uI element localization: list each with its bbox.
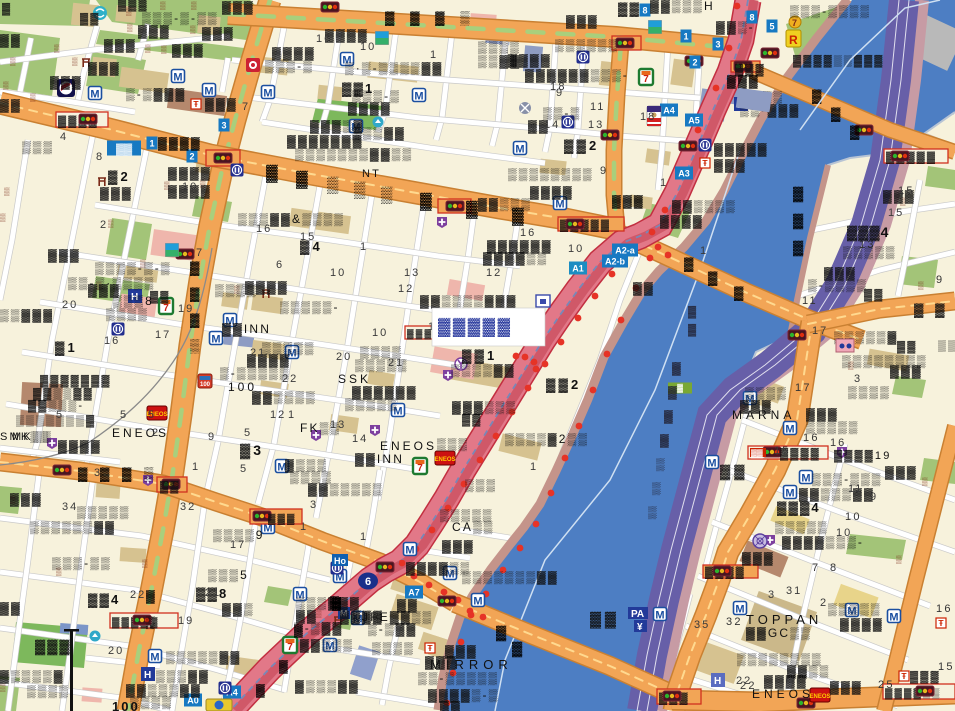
svg-text:▓: ▓ <box>688 323 697 337</box>
svg-text:2: 2 <box>152 427 160 439</box>
svg-text:▓▓: ▓▓ <box>633 281 655 296</box>
svg-text:3: 3 <box>768 589 776 601</box>
svg-text:M: M <box>889 612 898 624</box>
svg-text:▒▒▒▒▒▒: ▒▒▒▒▒▒ <box>555 38 619 52</box>
svg-text:▓: ▓ <box>420 192 432 211</box>
svg-text:17: 17 <box>230 539 246 551</box>
svg-text:7: 7 <box>196 247 204 259</box>
svg-text:▓▓▓: ▓▓▓ <box>727 74 760 89</box>
svg-text:31: 31 <box>786 585 802 597</box>
svg-text:▓▓▓: ▓▓▓ <box>885 465 918 480</box>
svg-text:1: 1 <box>360 241 368 253</box>
svg-text:▓▓▓: ▓▓▓ <box>205 97 238 112</box>
svg-text:▓▓▒▒▓▓: ▓▓▒▒▓▓ <box>33 387 94 401</box>
svg-text:▓▓: ▓▓ <box>590 611 620 629</box>
svg-text:▓▓▓: ▓▓▓ <box>104 38 137 53</box>
svg-text:▓▓▓: ▓▓▓ <box>172 43 205 58</box>
svg-text:▓▓: ▓▓ <box>864 288 884 302</box>
svg-text:M: M <box>555 199 564 211</box>
svg-text:▓▓▓▓: ▓▓▓▓ <box>530 185 574 200</box>
svg-text:16: 16 <box>316 33 332 45</box>
svg-text:▓: ▓ <box>512 640 524 658</box>
svg-text:21: 21 <box>250 347 266 359</box>
svg-text:7: 7 <box>287 642 293 653</box>
svg-text:▓▒▒▒▓▓: ▓▒▒▒▓▓ <box>295 679 360 694</box>
svg-text:▒▒▒▓▓: ▒▒▒▓▓ <box>156 669 210 684</box>
svg-text:▓▓1: ▓▓1 <box>462 348 497 364</box>
svg-text:▓▓▒▒▒▒▒: ▓▓▒▒▒▒▒ <box>308 482 383 497</box>
svg-text:1: 1 <box>530 461 538 473</box>
svg-text:▓▓▓▒▓: ▓▓▓▒▓ <box>310 119 365 134</box>
svg-text:▓▓▒▒▒: ▓▓▒▒▒ <box>478 197 532 212</box>
svg-text:M: M <box>515 144 524 156</box>
svg-text:2: 2 <box>820 597 828 609</box>
svg-text:▓2: ▓2 <box>108 169 131 185</box>
svg-text:▓: ▓ <box>266 164 278 183</box>
svg-text:34: 34 <box>62 501 78 513</box>
svg-text:2: 2 <box>100 219 108 231</box>
svg-text:1: 1 <box>430 49 438 61</box>
svg-text:▓▓: ▓▓ <box>160 480 180 494</box>
svg-text:▒: ▒ <box>648 505 657 519</box>
svg-text:M: M <box>150 652 159 664</box>
svg-text:▒▒▒▒▒▒▒▓▓▒▒: ▒▒▒▒▒▒▒▓▓▒▒ <box>295 147 413 162</box>
svg-text:▓▓▒▒▒▒▓▓▓: ▓▓▒▒▒▒▓▓▓ <box>420 294 518 309</box>
svg-text:15: 15 <box>888 207 904 219</box>
svg-text:▓: ▓ <box>466 200 478 219</box>
svg-text:▓▓▒-: ▓▓▒- <box>716 20 755 35</box>
svg-text:▓▓▓▓▓▓▒▒▒-: ▓▓▓▓▓▓▒▒▒- <box>525 68 629 83</box>
svg-text:▓: ▓ <box>512 207 524 226</box>
svg-text:Ŧ: Ŧ <box>901 671 907 681</box>
svg-text:▒: ▒ <box>144 466 154 482</box>
svg-text:▓▓▓: ▓▓▓ <box>50 75 83 90</box>
svg-text:▓▓▓▓: ▓▓▓▓ <box>660 214 704 229</box>
svg-text:5: 5 <box>244 427 252 439</box>
svg-text:▓▓INN: ▓▓INN <box>222 322 271 337</box>
svg-text:PA: PA <box>631 609 644 620</box>
svg-text:9: 9 <box>556 87 564 99</box>
svg-text:▓▓▓: ▓▓▓ <box>612 194 645 209</box>
svg-text:▓▓▓▓▒-▒: ▓▓▓▓▒-▒ <box>428 688 499 703</box>
svg-text:▓: ▓ <box>279 659 288 674</box>
svg-text:▒: ▒ <box>72 57 78 66</box>
svg-text:15: 15 <box>898 185 915 197</box>
svg-text:▒▒-▒▒▒▒▒: ▒▒-▒▒▒▒▒ <box>418 671 499 685</box>
svg-text:10: 10 <box>568 243 584 255</box>
svg-text:▒▒▒5: ▒▒▒5 <box>208 568 249 582</box>
svg-text:▓▓▓: ▓▓▓ <box>118 0 149 12</box>
svg-text:Ŧ: Ŧ <box>938 618 944 628</box>
svg-text:16: 16 <box>520 227 536 239</box>
svg-text:▒▒▓▓▓: ▒▒▓▓▓ <box>0 308 54 323</box>
svg-text:▒: ▒ <box>656 457 665 471</box>
svg-text:▓: ▓ <box>677 384 683 394</box>
svg-text:5: 5 <box>120 409 128 421</box>
svg-text:A2-a: A2-a <box>615 246 636 256</box>
svg-text:▓: ▓ <box>688 305 697 319</box>
svg-text:TOPPAN: TOPPAN <box>746 612 822 627</box>
svg-text:▒▒▒: ▒▒▒ <box>465 478 497 492</box>
svg-text:A2-b: A2-b <box>605 257 626 267</box>
svg-text:16: 16 <box>830 437 846 449</box>
svg-text:▓▓: ▓▓ <box>116 143 133 157</box>
svg-text:▓▓▓▓▒▒: ▓▓▓▓▒▒ <box>483 251 548 266</box>
svg-text:5: 5 <box>769 22 774 32</box>
svg-text:5: 5 <box>240 463 248 475</box>
svg-text:12: 12 <box>486 267 502 279</box>
svg-text:▓3: ▓3 <box>240 442 264 460</box>
svg-text:▓▓4: ▓▓4 <box>88 592 120 608</box>
svg-text:14: 14 <box>544 119 560 131</box>
svg-text:▒▒▒▒▒▒▒▓▓: ▒▒▒▒▒▒▒▓▓ <box>462 570 559 585</box>
svg-text:▓1: ▓1 <box>55 340 78 356</box>
svg-text:▒: ▒ <box>161 45 167 54</box>
svg-text:▓: ▓ <box>296 170 308 189</box>
svg-text:▒▒▒▒: ▒▒▒▒ <box>478 40 521 54</box>
svg-text:▓▓2: ▓▓2 <box>546 377 581 393</box>
svg-text:▓▓▓: ▓▓▓ <box>714 158 747 173</box>
svg-text:▓▓▓: ▓▓▓ <box>48 248 81 263</box>
svg-text:▓▓▓4: ▓▓▓4 <box>777 500 821 516</box>
svg-text:▒▒-▒: ▒▒-▒ <box>543 106 581 120</box>
svg-text:2: 2 <box>692 58 697 68</box>
svg-text:17: 17 <box>155 329 171 341</box>
svg-text:▓: ▓ <box>294 623 303 638</box>
svg-text:▓: ▓ <box>734 285 744 301</box>
svg-text:▓▓▒▒▒▒: ▓▓▒▒▒▒ <box>252 390 317 405</box>
svg-text:▒: ▒ <box>896 555 902 564</box>
svg-text:13: 13 <box>330 419 346 431</box>
svg-text:▓▓▓▓: ▓▓▓▓ <box>840 617 884 632</box>
svg-text:1: 1 <box>530 123 538 135</box>
svg-text:▒: ▒ <box>108 219 114 228</box>
svg-text:▓▓: ▓▓ <box>751 449 763 459</box>
svg-text:100: 100 <box>200 382 211 388</box>
svg-text:▓▓▓: ▓▓▓ <box>566 14 599 29</box>
svg-text:▓▓: ▓▓ <box>462 413 482 427</box>
svg-text:16: 16 <box>803 432 820 444</box>
svg-text:▓▓▓▓▒▒▓▓▓: ▓▓▓▓▒▒▓▓▓ <box>793 54 885 68</box>
svg-text:Ŧ: Ŧ <box>427 643 433 653</box>
svg-text:▒▒▒▒▓▓: ▒▒▒▒▓▓ <box>451 363 516 378</box>
svg-text:▓▓▓: ▓▓▓ <box>830 680 863 695</box>
svg-text:MARNA: MARNA <box>732 408 795 422</box>
svg-text:¥: ¥ <box>637 622 643 633</box>
svg-text:1: 1 <box>360 531 368 543</box>
svg-text:9: 9 <box>936 274 944 286</box>
svg-text:▓▓▓: ▓▓▓ <box>442 539 475 554</box>
svg-text:▓▓▓▓▒▒: ▓▓▓▓▒▒ <box>406 561 471 576</box>
svg-text:▒▒▒▒▒: ▒▒▒▒▒ <box>775 520 829 534</box>
svg-text:▓: ▓ <box>793 185 804 203</box>
svg-text:21: 21 <box>388 357 404 369</box>
svg-text:▒: ▒ <box>381 186 393 204</box>
svg-text:▓▓▓▓: ▓▓▓▓ <box>58 439 102 454</box>
svg-text:▒·▒-▒▒▒▒▓▓: ▒·▒-▒▒▒▒▓▓ <box>345 61 444 76</box>
svg-text:19: 19 <box>178 303 194 315</box>
svg-text:1: 1 <box>288 409 296 421</box>
svg-text:CA▒▒: CA▒▒ <box>452 520 494 534</box>
svg-text:▓: ▓ <box>708 270 718 286</box>
svg-text:22: 22 <box>130 589 146 601</box>
svg-text:▒: ▒ <box>160 1 166 10</box>
svg-text:▓▓▓: ▓▓▓ <box>10 492 43 507</box>
svg-text:▒▒▒: ▒▒▒ <box>352 609 384 623</box>
svg-text:1: 1 <box>700 245 708 257</box>
svg-text:Ŧ: Ŧ <box>702 158 708 168</box>
svg-text:▓▓▓: ▓▓▓ <box>268 513 296 525</box>
svg-text:▒: ▒ <box>10 57 16 66</box>
svg-text:7: 7 <box>417 463 423 474</box>
svg-text:7: 7 <box>242 101 250 113</box>
svg-text:▓▓▓: ▓▓▓ <box>88 61 121 76</box>
svg-text:11: 11 <box>848 483 863 495</box>
svg-text:ENEOS: ENEOS <box>752 687 814 701</box>
svg-text:17: 17 <box>812 325 828 337</box>
svg-text:▓▓▓▓19: ▓▓▓▓19 <box>834 449 892 463</box>
svg-text:▓▓▓: ▓▓▓ <box>824 266 857 281</box>
svg-text:▓: ▓ <box>2 2 12 16</box>
svg-text:▓▓: ▓▓ <box>720 463 748 481</box>
svg-text:3: 3 <box>854 373 862 385</box>
svg-text:M: M <box>473 596 482 608</box>
svg-text:▓: ▓ <box>190 286 200 302</box>
svg-text:▒▒▒▒▒▒▓▓: ▒▒▒▒▒▒▓▓ <box>30 520 116 535</box>
svg-text:NT: NT <box>362 168 381 180</box>
svg-text:▓▓▓▓: ▓▓▓▓ <box>158 136 202 151</box>
svg-text:▓▓▓▓: ▓▓▓▓ <box>348 101 392 116</box>
svg-text:▒▒▒▒: ▒▒▒▒ <box>848 385 891 399</box>
svg-text:▓: ▓ <box>831 106 841 122</box>
svg-text:ENEOS: ENEOS <box>380 439 437 453</box>
svg-text:▓▓: ▓▓ <box>0 601 22 616</box>
svg-text:H: H <box>714 676 721 687</box>
svg-text:▒▒▒▒: ▒▒▒▒ <box>215 283 258 297</box>
svg-text:M: M <box>405 545 414 557</box>
svg-text:▓▓▒: ▓▓▒ <box>222 602 255 617</box>
svg-text:20: 20 <box>108 645 124 657</box>
svg-text:▒: ▒ <box>54 44 60 53</box>
svg-text:▓▓▓: ▓▓▓ <box>138 24 171 39</box>
svg-text:▓▓: ▓▓ <box>0 98 22 113</box>
svg-text:10: 10 <box>372 327 388 339</box>
svg-text:▒-▒▒▒▒: ▒-▒▒▒▒ <box>808 278 868 292</box>
svg-text:6: 6 <box>276 259 284 271</box>
svg-text:M: M <box>785 424 794 436</box>
svg-text:10: 10 <box>360 41 376 53</box>
svg-text:▓: ▓ <box>793 212 804 230</box>
svg-text:20: 20 <box>336 351 352 363</box>
svg-text:6: 6 <box>365 576 371 588</box>
svg-text:▓▓▒▒▒H: ▓▓▒▒▒H <box>650 0 715 14</box>
svg-text:10: 10 <box>330 267 346 279</box>
svg-text:15: 15 <box>938 661 955 673</box>
svg-text:▒▒▒▓▓&▒▒▒▒: ▒▒▒▓▓&▒▒▒▒ <box>238 212 345 227</box>
svg-text:5: 5 <box>56 409 64 421</box>
svg-text:▒▒▒▒▒: ▒▒▒▒▒ <box>77 505 131 519</box>
svg-text:MK▒▒: MK▒▒ <box>12 430 53 443</box>
svg-text:▓▓▓: ▓▓▓ <box>910 670 941 684</box>
svg-text:▒-▒▒▒▒▒: ▒-▒▒▒▒▒ <box>220 366 290 380</box>
svg-text:M: M <box>801 473 810 485</box>
svg-text:17: 17 <box>795 382 812 394</box>
svg-text:10: 10 <box>845 511 862 523</box>
svg-text:13: 13 <box>404 267 420 279</box>
svg-text:A7: A7 <box>408 588 420 598</box>
svg-text:▒▒▒▒▒▒▒▒: ▒▒▒▒▒▒▒▒ <box>508 167 594 181</box>
svg-text:M: M <box>90 89 99 101</box>
svg-text:▒▒▒-▒: ▒▒▒-▒ <box>265 59 314 73</box>
svg-text:▓▓2: ▓▓2 <box>564 138 599 154</box>
svg-text:▒▒▒: ▒▒▒ <box>22 140 54 154</box>
svg-text:▓: ▓ <box>78 466 88 482</box>
svg-text:▓▓: ▓▓ <box>0 33 22 48</box>
svg-text:▒▒▒▒▒: ▒▒▒▒▒ <box>345 397 399 411</box>
svg-text:▓▓▓▓▓▓▓: ▓▓▓▓▓▓▓ <box>40 374 112 388</box>
svg-text:▓▓: ▓▓ <box>80 12 100 26</box>
svg-text:8: 8 <box>642 6 647 16</box>
svg-text:▓: ▓ <box>146 589 155 604</box>
svg-text:20: 20 <box>62 299 78 311</box>
svg-text:▒▒▒▒▒: ▒▒▒▒▒ <box>843 245 897 259</box>
svg-text:▓▓: ▓▓ <box>897 340 917 354</box>
svg-text:▒: ▒ <box>652 481 661 495</box>
svg-text:A5: A5 <box>688 116 700 126</box>
svg-text:▓▓▓▒▒▒: ▓▓▓▒▒▒ <box>452 400 517 415</box>
svg-text:▓: ▓ <box>684 256 694 272</box>
svg-text:12: 12 <box>270 409 286 421</box>
svg-text:10: 10 <box>836 527 852 539</box>
svg-text:M: M <box>173 72 182 84</box>
svg-text:▒: ▒ <box>922 477 928 486</box>
svg-text:A3: A3 <box>678 169 690 179</box>
svg-text:▒▒▒▒▒: ▒▒▒▒▒ <box>828 602 882 616</box>
svg-text:▒▒▒▒: ▒▒▒▒ <box>27 684 70 698</box>
svg-text:▒▒▒▒: ▒▒▒▒ <box>372 641 415 655</box>
svg-text:1: 1 <box>660 177 668 189</box>
svg-text:▓▓GC▒▒: ▓▓GC▒▒ <box>746 626 812 641</box>
svg-text:5: 5 <box>148 409 156 421</box>
svg-text:19: 19 <box>178 615 194 627</box>
svg-text:2: 2 <box>189 152 194 162</box>
svg-text:▓▓▓▓▓: ▓▓▓▓▓ <box>438 317 512 337</box>
svg-text:9: 9 <box>208 431 216 443</box>
svg-text:MIRROR: MIRROR <box>430 657 513 672</box>
svg-text:16: 16 <box>936 603 953 615</box>
svg-text:35: 35 <box>694 619 710 631</box>
svg-text:▒▒▒▒▓2▒▒: ▒▒▒▒▓2▒▒ <box>505 432 589 447</box>
svg-text:▓: ▓ <box>672 361 681 376</box>
svg-text:22: 22 <box>282 373 298 385</box>
svg-text:32: 32 <box>726 616 743 628</box>
svg-text:▒: ▒ <box>4 187 10 196</box>
svg-text:▓: ▓ <box>793 239 804 257</box>
svg-text:▓ ▓ ▓ ▒: ▓ ▓ ▓ ▒ <box>385 10 475 26</box>
svg-text:▓: ▓ <box>122 466 132 482</box>
svg-text:22: 22 <box>740 680 757 692</box>
svg-text:9: 9 <box>600 165 608 177</box>
svg-text:▓▓▓: ▓▓▓ <box>222 0 255 15</box>
svg-text:R: R <box>789 33 798 47</box>
svg-text:▒: ▒ <box>190 25 196 34</box>
svg-text:7: 7 <box>812 562 820 574</box>
svg-text:9: 9 <box>870 491 878 503</box>
svg-text:M: M <box>211 334 220 346</box>
svg-text:3: 3 <box>310 499 318 511</box>
svg-text:▒▒▒▒: ▒▒▒▒ <box>130 695 173 709</box>
svg-text:16: 16 <box>104 335 120 347</box>
svg-text:▒-▒▓▓: ▒-▒▓▓ <box>368 622 418 637</box>
svg-text:▒▒▒▒▒▓▓: ▒▒▒▒▒▓▓ <box>166 650 241 665</box>
svg-text:▒▒▓▓: ▒▒▓▓ <box>478 54 521 69</box>
svg-text:15: 15 <box>300 231 316 243</box>
svg-text:7: 7 <box>643 74 649 85</box>
svg-text:▒: ▒ <box>190 338 200 354</box>
svg-text:A1: A1 <box>572 264 584 274</box>
svg-text:14: 14 <box>352 433 368 445</box>
svg-text:M: M <box>735 604 744 616</box>
svg-text:15: 15 <box>774 445 790 457</box>
svg-text:▒: ▒ <box>918 281 924 290</box>
svg-text:M: M <box>655 610 664 622</box>
svg-text:▓▓▓▓: ▓▓▓▓ <box>168 166 212 181</box>
svg-text:▓: ▓ <box>664 409 673 424</box>
svg-text:Ho: Ho <box>334 556 346 566</box>
svg-text:▓: ▓ <box>330 595 339 610</box>
svg-text:11: 11 <box>590 101 605 113</box>
svg-text:▒: ▒ <box>146 615 155 629</box>
svg-text:▓: ▓ <box>850 124 860 140</box>
svg-text:M: M <box>263 88 272 100</box>
svg-text:▓▓: ▓▓ <box>440 700 462 711</box>
svg-text:▒▒▒▒: ▒▒▒▒ <box>745 386 788 400</box>
svg-text:A4: A4 <box>663 106 675 116</box>
svg-text:▓▓▓: ▓▓▓ <box>100 186 133 201</box>
svg-text:18: 18 <box>640 111 656 123</box>
svg-text:ENEOS: ENEOS <box>434 457 455 463</box>
svg-text:12: 12 <box>398 283 414 295</box>
svg-text:▒: ▒ <box>327 176 339 194</box>
svg-text:▓▓INN: ▓▓INN <box>355 452 404 467</box>
svg-text:M: M <box>414 91 423 103</box>
svg-text:H: H <box>144 670 151 681</box>
svg-text:▓: ▓ <box>668 385 677 400</box>
svg-text:16: 16 <box>256 223 272 235</box>
svg-text:13: 13 <box>588 119 604 131</box>
svg-text:32: 32 <box>180 501 196 513</box>
svg-text:▓ ▓: ▓ ▓ <box>914 302 949 318</box>
svg-text:A0: A0 <box>187 696 199 706</box>
svg-text:▒▒▒8: ▒▒▒8 <box>113 294 154 308</box>
svg-text:▒▒▒-▒▒: ▒▒▒-▒▒ <box>52 556 112 570</box>
svg-text:▒▒▒▒-▒-▒: ▒▒▒▒-▒-▒ <box>95 261 172 275</box>
svg-text:11: 11 <box>802 295 818 307</box>
svg-text:▓▓▒▒▒▒: ▓▓▒▒▒▒ <box>672 199 737 214</box>
svg-text:▓▓: ▓▓ <box>618 1 641 17</box>
svg-text:8: 8 <box>830 562 838 574</box>
svg-text:▒▒▒: ▒▒▒ <box>437 437 469 451</box>
svg-text:1: 1 <box>683 32 688 42</box>
svg-text:21: 21 <box>205 587 221 599</box>
svg-text:3: 3 <box>94 467 102 479</box>
svg-text:▒-▒▓▓▓: ▒-▒▓▓▓ <box>126 87 186 102</box>
svg-text:▓▓▓: ▓▓▓ <box>202 26 235 41</box>
svg-text:25: 25 <box>878 679 895 691</box>
svg-text:1: 1 <box>149 139 154 149</box>
svg-text:10: 10 <box>182 181 198 193</box>
svg-text:▓▓▒▒▒: ▓▓▒▒▒ <box>300 638 354 653</box>
